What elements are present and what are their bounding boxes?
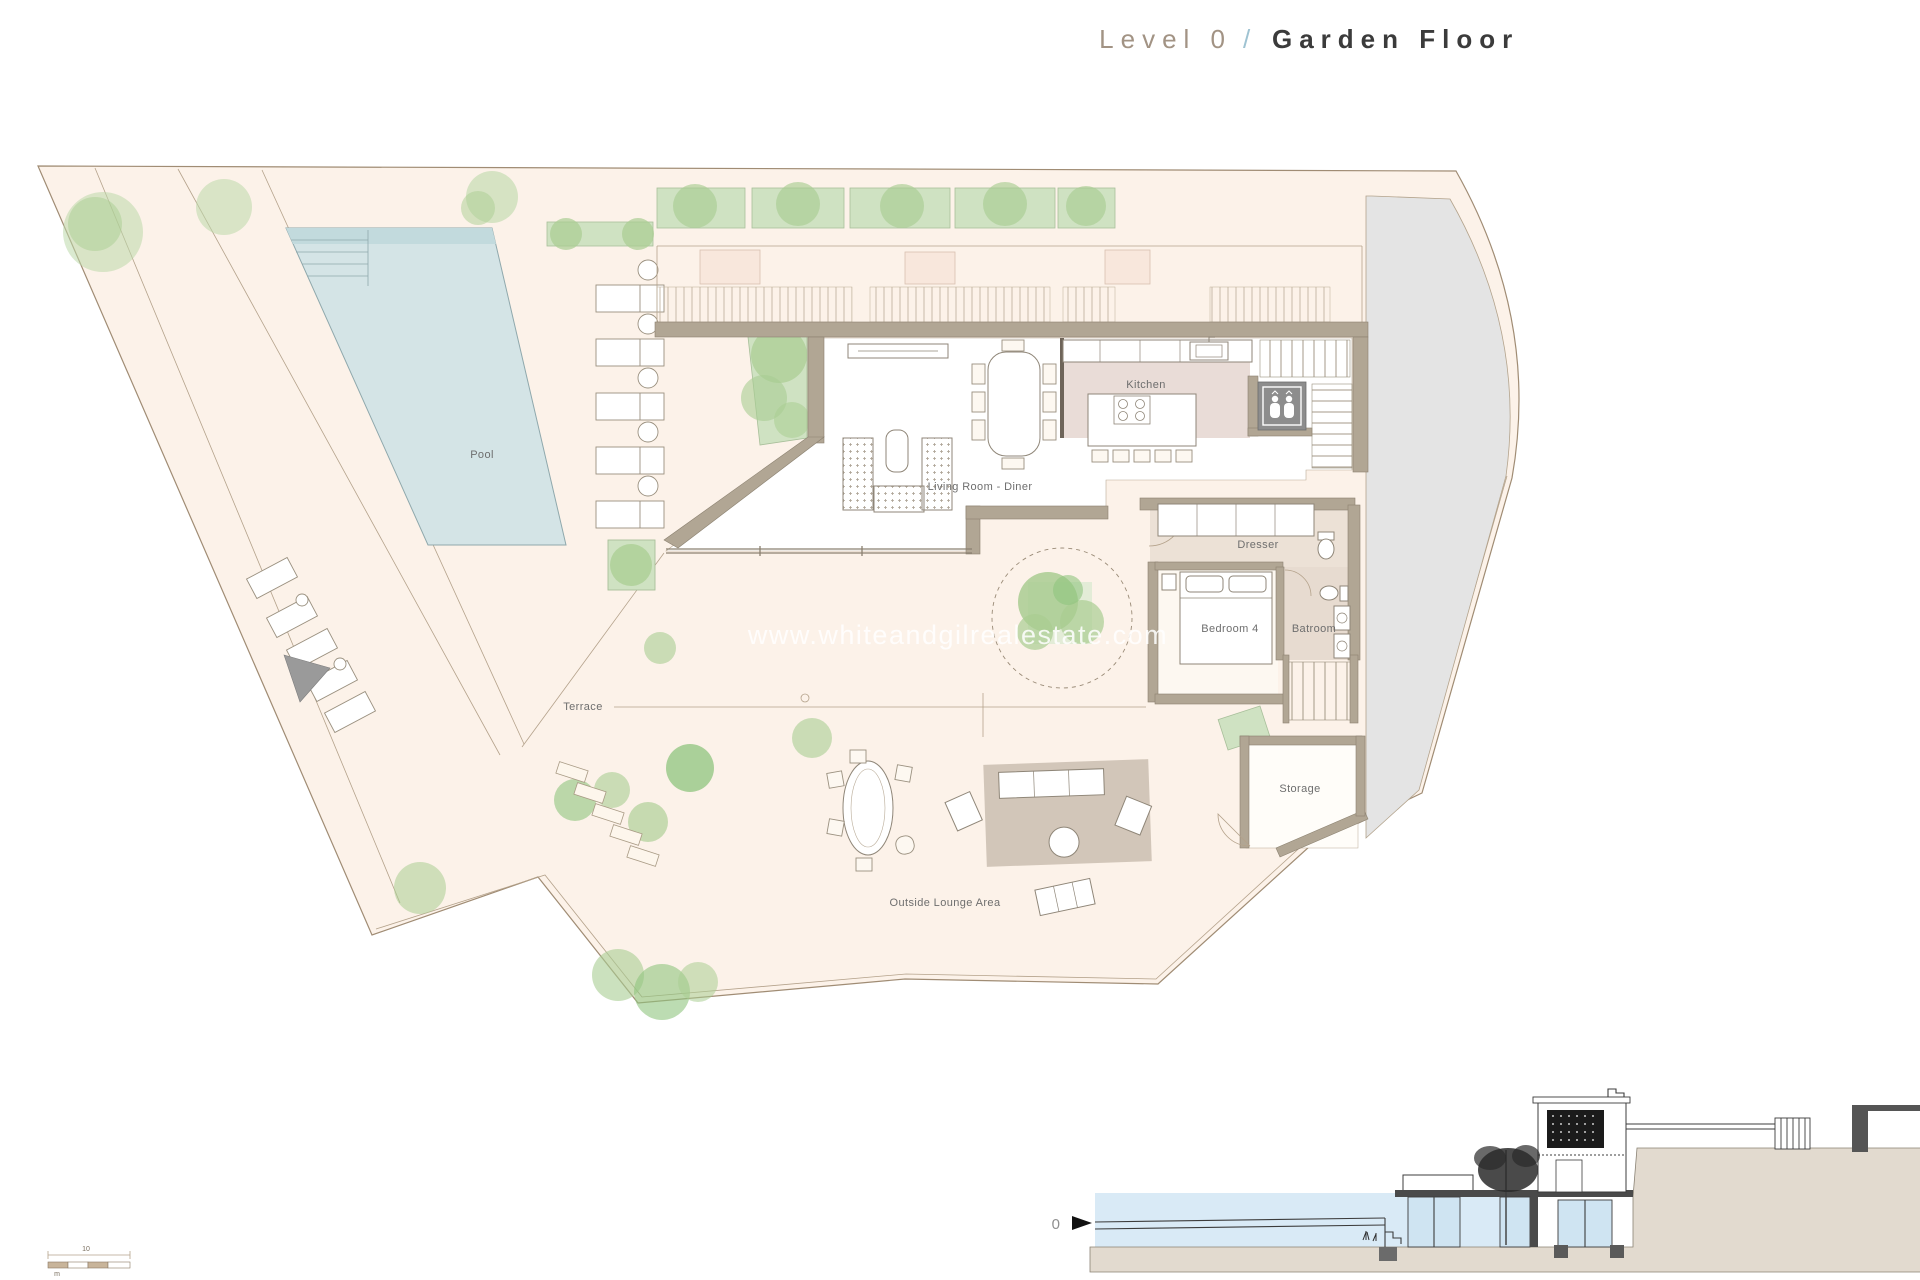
- tree: [554, 779, 596, 821]
- title-separator: /: [1243, 24, 1257, 54]
- room-label-living-room: Living Room - Diner: [928, 481, 1033, 493]
- bush: [678, 962, 718, 1002]
- storage-floor: [1246, 744, 1358, 848]
- bush: [394, 862, 446, 914]
- section-level-arrow-icon: [1072, 1216, 1092, 1230]
- planter: [905, 252, 955, 284]
- section-level-marker: 0: [1052, 1216, 1062, 1233]
- title-floor: Garden Floor: [1272, 24, 1519, 54]
- tree: [461, 191, 495, 225]
- tree: [792, 718, 832, 758]
- elevator: [1258, 382, 1306, 430]
- nightstand: [1162, 574, 1176, 590]
- exterior-steps: [1286, 662, 1352, 720]
- room-label-bathroom: Batroom: [1292, 623, 1336, 635]
- tree: [666, 744, 714, 792]
- wc-toilet: [1318, 539, 1334, 559]
- tree: [68, 197, 122, 251]
- watermark-text: www.whiteandgilrealestate.com: [747, 620, 1168, 650]
- toilet-cistern: [1340, 586, 1348, 601]
- floor-plan-page: Pool Terrace Kitchen Living Room - Diner…: [0, 0, 1920, 1280]
- oval-dining-table: [843, 761, 893, 855]
- room-label-kitchen: Kitchen: [1126, 379, 1166, 391]
- pool-steps-shallow: [286, 228, 496, 244]
- section-sky: [1095, 1193, 1530, 1247]
- neighbor-gray-area: [1366, 196, 1510, 838]
- section-louver-panel: [1547, 1110, 1604, 1148]
- scale-unit-label: m: [54, 1271, 60, 1278]
- sink: [1334, 634, 1350, 658]
- page-title: Level 0 / Garden Floor: [1099, 24, 1519, 54]
- planter: [700, 250, 760, 284]
- room-label-dresser: Dresser: [1237, 539, 1278, 551]
- room-label-bedroom4: Bedroom 4: [1201, 623, 1258, 635]
- room-label-pool: Pool: [470, 449, 494, 461]
- section-wall-post: [1852, 1108, 1868, 1152]
- section-drawing: 0: [1052, 1089, 1920, 1272]
- section-gate: [1775, 1118, 1810, 1149]
- hedge-tree: [550, 218, 582, 250]
- tree: [644, 632, 676, 664]
- sink: [1334, 606, 1350, 630]
- hedge-tree: [622, 218, 654, 250]
- room-label-outside-lounge: Outside Lounge Area: [890, 897, 1001, 909]
- floor-plan-canvas: Pool Terrace Kitchen Living Room - Diner…: [0, 0, 1920, 1280]
- section-footing: [1379, 1247, 1397, 1261]
- coffee-table: [1049, 827, 1080, 858]
- scale-bar: 10 m: [48, 1246, 130, 1278]
- title-level: Level 0: [1099, 24, 1232, 54]
- room-label-storage: Storage: [1279, 783, 1320, 795]
- sofa: [999, 769, 1105, 799]
- tree: [196, 179, 252, 235]
- kitchen-stools: [1092, 450, 1192, 462]
- tree: [774, 402, 810, 438]
- toilet: [1320, 586, 1338, 600]
- scale-distance-label: 10: [82, 1246, 90, 1253]
- hedge-row: [657, 182, 1115, 228]
- room-label-terrace: Terrace: [563, 701, 602, 713]
- planter: [1105, 250, 1150, 284]
- tree: [610, 544, 652, 586]
